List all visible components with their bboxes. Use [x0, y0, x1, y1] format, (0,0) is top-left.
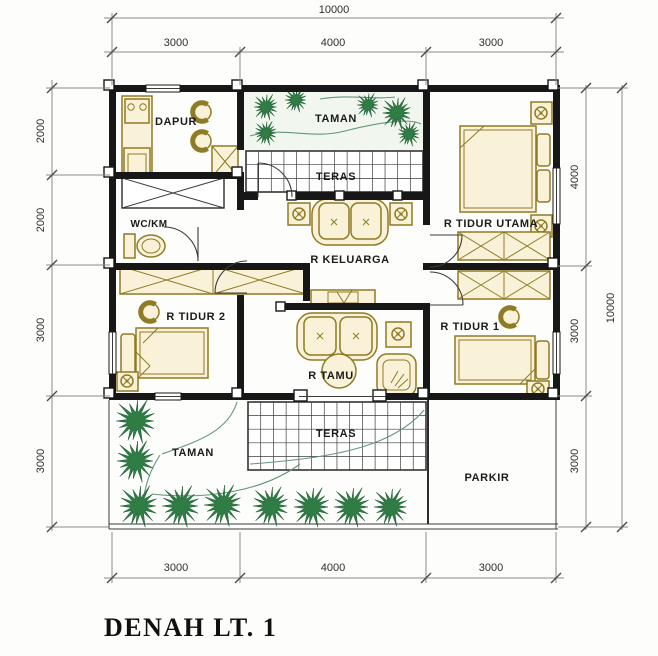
- label-tamu: R TAMU: [308, 370, 354, 382]
- dim-top-total: 10000: [319, 4, 350, 16]
- right-dimensions: 4000 3000 3000 10000: [558, 83, 628, 532]
- dim-left-1: 2000: [35, 119, 47, 143]
- label-keluarga: R KELUARGA: [310, 254, 389, 266]
- label-teras-front: TERAS: [316, 428, 356, 440]
- dim-bottom-1: 3000: [164, 562, 188, 574]
- floorplan-page: 10000 3000 4000 3000 2000 2000 3000 3000: [0, 0, 658, 656]
- dim-right-3: 3000: [569, 449, 581, 473]
- plan-title: DENAH LT. 1: [104, 613, 277, 642]
- lamp-icon: [141, 303, 159, 322]
- flower-pot-icon: [392, 328, 404, 340]
- label-taman-front: TAMAN: [172, 447, 214, 459]
- left-dimensions: 2000 2000 3000 3000: [35, 80, 110, 532]
- floorplan-svg: 10000 3000 4000 3000 2000 2000 3000 3000: [0, 0, 658, 656]
- dim-right-total: 10000: [605, 293, 617, 324]
- bedroom1-furniture: [455, 271, 550, 398]
- bathroom-fixtures: [122, 178, 224, 258]
- label-dapur: DAPUR: [155, 116, 197, 128]
- dim-left-4: 3000: [35, 449, 47, 473]
- lamp-icon: [501, 308, 519, 327]
- flower-pot-icon: [293, 208, 305, 220]
- flower-pot-icon: [121, 375, 133, 387]
- label-parkir: PARKIR: [465, 472, 510, 484]
- dim-right-2: 3000: [569, 319, 581, 343]
- guest-room-furniture: [297, 313, 416, 396]
- label-tidur-1: R TIDUR 1: [440, 321, 499, 333]
- flower-pot-icon: [395, 208, 407, 220]
- dim-bottom-2: 4000: [321, 562, 345, 574]
- dim-right-1: 4000: [569, 165, 581, 189]
- dim-bottom-3: 3000: [479, 562, 503, 574]
- dim-top-2: 4000: [321, 37, 345, 49]
- dim-left-3: 3000: [35, 318, 47, 342]
- dim-left-2: 2000: [35, 208, 47, 232]
- bottom-dimensions: 3000 4000 3000: [104, 532, 564, 583]
- flower-pot-icon: [535, 107, 547, 119]
- dim-top-1: 3000: [164, 37, 188, 49]
- label-teras-top: TERAS: [316, 171, 356, 183]
- label-taman-top: TAMAN: [315, 113, 357, 125]
- top-dimensions: 10000 3000 4000 3000: [104, 4, 564, 85]
- dim-top-3: 3000: [479, 37, 503, 49]
- bedroom2-furniture: [117, 266, 306, 391]
- label-wc-km: WC/KM: [131, 219, 168, 230]
- master-bedroom-furniture: [458, 102, 552, 260]
- label-tidur-2: R TIDUR 2: [166, 311, 225, 323]
- kitchen-stool-icon: [193, 132, 211, 151]
- label-tidur-utama: R TIDUR UTAMA: [444, 218, 538, 230]
